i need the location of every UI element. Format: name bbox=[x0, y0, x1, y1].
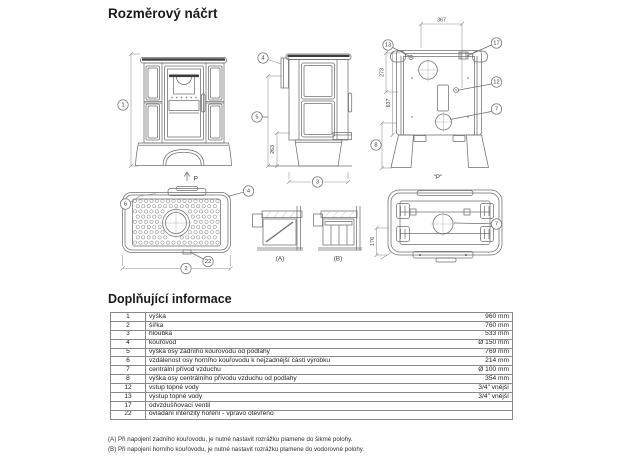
marker-6-grate: 6 bbox=[120, 194, 156, 210]
row-value: 960 mm bbox=[443, 313, 513, 322]
burn-control-lever bbox=[183, 250, 191, 254]
central-air-hole bbox=[434, 112, 454, 132]
row-number: 13 bbox=[111, 393, 146, 402]
table-row: 3hloubka533 mm bbox=[111, 330, 513, 339]
marker-22-label: 22 bbox=[205, 259, 211, 265]
marker-8-air-height: 8 bbox=[371, 140, 381, 150]
marker-12-water-inlet: 12 bbox=[459, 77, 502, 90]
dim-367 bbox=[419, 22, 464, 88]
marker-5-flue-height: 5 bbox=[252, 112, 268, 122]
table-row: 13výstup topné vody3/4" vnější bbox=[111, 393, 513, 402]
bottom-outline bbox=[388, 190, 502, 255]
baffle-horizontal bbox=[325, 222, 352, 226]
direction-p-label: P bbox=[194, 176, 199, 183]
document-page: Rozměrový náčrt 1 bbox=[0, 0, 624, 460]
row-value: 354 mm bbox=[443, 375, 513, 384]
row-number: 2 bbox=[111, 321, 146, 330]
marker-2-width: 2 bbox=[181, 263, 191, 273]
direction-p: P bbox=[184, 172, 198, 183]
table-row: 6vzdálenost osy horního kouřovodu k nejz… bbox=[111, 357, 513, 366]
dim-central-air-height bbox=[380, 121, 397, 170]
marker-12-label: 12 bbox=[493, 79, 499, 85]
dim-overall-height bbox=[129, 52, 140, 168]
marker-3-depth: 3 bbox=[312, 177, 322, 187]
flue-damper-arc bbox=[177, 77, 192, 85]
footnotes: (A) Při napojení zadního kouřovodu, je n… bbox=[108, 435, 364, 454]
top-flue-opening bbox=[160, 207, 192, 239]
dim-637-label: 637 bbox=[386, 99, 392, 108]
marker-7-label: 7 bbox=[495, 106, 498, 112]
rear-view: 367 bbox=[371, 18, 502, 182]
detail-b-label: (B) bbox=[334, 256, 342, 263]
top-view: 6 4 22 2 bbox=[120, 186, 253, 274]
marker-13-water-outlet: 13 bbox=[383, 40, 409, 56]
table-row: 8výška osy centrálního přívodu vzduchu o… bbox=[111, 375, 513, 384]
dim-263-label: 263 bbox=[270, 145, 276, 154]
dim-367-label: 367 bbox=[437, 18, 446, 24]
row-description: odvzdušňovací ventil bbox=[146, 401, 443, 410]
row-value: Ø 150 mm bbox=[443, 339, 513, 348]
marker-8-label: 8 bbox=[374, 142, 377, 148]
row-number: 3 bbox=[111, 330, 146, 339]
dimensional-drawing: 1 bbox=[0, 0, 624, 292]
side-view: 4 5 bbox=[252, 53, 352, 187]
bottom-central-air bbox=[431, 212, 455, 236]
detail-a-label: (A) bbox=[276, 256, 284, 263]
vent-valve bbox=[459, 52, 468, 59]
row-description: výška bbox=[146, 313, 443, 322]
marker-4-flue: 4 bbox=[258, 53, 268, 63]
row-number: 1 bbox=[111, 313, 146, 322]
front-view: 1 bbox=[118, 52, 232, 183]
row-description: centrální přívod vzduchu bbox=[146, 366, 443, 375]
front-door bbox=[165, 66, 205, 140]
detail-view-a: (A) bbox=[253, 206, 304, 263]
baffle-slanted bbox=[266, 222, 293, 242]
side-tiles bbox=[302, 63, 335, 137]
row-value bbox=[443, 401, 513, 410]
row-number: 4 bbox=[111, 339, 146, 348]
row-description: vstup topné vody bbox=[146, 384, 443, 393]
marker-5-label: 5 bbox=[255, 114, 258, 120]
footnote-b: (B) Při napojení horního kouřovodu, je n… bbox=[108, 445, 364, 455]
row-description: výstup topné vody bbox=[146, 393, 443, 402]
marker-2-label: 2 bbox=[184, 266, 187, 272]
top-flue-hole bbox=[417, 59, 440, 82]
row-value: 3/4" vnější bbox=[443, 384, 513, 393]
marker-1-height: 1 bbox=[118, 100, 128, 110]
marker-17-label: 17 bbox=[493, 40, 499, 46]
rear-legs bbox=[391, 135, 489, 168]
marker-7-bottom-air: 7 bbox=[454, 219, 502, 229]
marker-1-label: 1 bbox=[121, 102, 124, 108]
rear-slot bbox=[438, 85, 449, 111]
front-top-plate-edge bbox=[142, 58, 225, 60]
detail-view-b: (B) bbox=[314, 206, 363, 263]
marker-6-label: 6 bbox=[124, 201, 127, 207]
side-base bbox=[295, 140, 342, 166]
side-body bbox=[289, 60, 348, 141]
dim-273-label: 273 bbox=[380, 68, 386, 77]
row-description: ovládání intenzity hoření - vpravo otevř… bbox=[146, 410, 443, 419]
rear-flue-collar bbox=[281, 58, 289, 88]
table-row: 5výška osy zadního kouřovodu od podlahy7… bbox=[111, 348, 513, 357]
marker-3-label: 3 bbox=[316, 179, 319, 185]
marker-4-top-flue: 4 bbox=[228, 186, 254, 197]
marker-13-label: 13 bbox=[385, 42, 391, 48]
row-value: 533 mm bbox=[443, 330, 513, 339]
info-table: 1výška960 mm 2šířka760 mm 3hloubka533 mm… bbox=[110, 312, 513, 420]
row-number: 12 bbox=[111, 384, 146, 393]
table-row: 1výška960 mm bbox=[111, 313, 513, 322]
marker-17-vent-valve: 17 bbox=[467, 38, 502, 56]
table-row: 22ovládání intenzity hoření - vpravo ote… bbox=[111, 410, 513, 419]
row-value bbox=[443, 410, 513, 419]
footnote-a: (A) Při napojení zadního kouřovodu, je n… bbox=[108, 435, 364, 445]
row-value: 769 mm bbox=[443, 348, 513, 357]
perforation-grid bbox=[133, 199, 219, 244]
row-value: 760 mm bbox=[443, 321, 513, 330]
row-description: výška osy centrálního přívodu vzduchu od… bbox=[146, 375, 443, 384]
table-row: 2šířka760 mm bbox=[111, 321, 513, 330]
row-description: šířka bbox=[146, 321, 443, 330]
front-right-tiles bbox=[206, 66, 224, 140]
table-row: 12vstup topné vody3/4" vnější bbox=[111, 384, 513, 393]
row-number: 8 bbox=[111, 375, 146, 384]
marker-7-central-air: 7 bbox=[450, 104, 502, 120]
table-row: 4kouřovodØ 150 mm bbox=[111, 339, 513, 348]
row-description: vzdálenost osy horního kouřovodu k nejza… bbox=[146, 357, 443, 366]
row-value: 3/4" vnější bbox=[443, 393, 513, 402]
marker-7-bottom-label: 7 bbox=[495, 221, 498, 227]
row-description: výška osy zadního kouřovodu od podlahy bbox=[146, 348, 443, 357]
table-row: 17odvzdušňovací ventil bbox=[111, 401, 513, 410]
dim-637 bbox=[386, 51, 400, 137]
rear-body bbox=[397, 51, 482, 136]
marker-22-burn-control: 22 bbox=[191, 253, 213, 267]
front-left-tiles bbox=[144, 66, 162, 140]
dim-273 bbox=[384, 51, 398, 94]
ash-lip bbox=[333, 133, 352, 140]
section-title: Doplňující informace bbox=[108, 292, 232, 306]
dim-263 bbox=[275, 131, 290, 168]
table-row: 7centrální přívod vzduchuØ 100 mm bbox=[111, 366, 513, 375]
front-base bbox=[136, 143, 232, 166]
row-number: 22 bbox=[111, 410, 146, 419]
row-number: 7 bbox=[111, 366, 146, 375]
rear-view-label: "P" bbox=[434, 174, 443, 181]
row-number: 17 bbox=[111, 401, 146, 410]
dim-176-label: 176 bbox=[370, 237, 376, 246]
bottom-view: 7 176 bbox=[370, 190, 502, 262]
row-number: 6 bbox=[111, 357, 146, 366]
row-number: 5 bbox=[111, 348, 146, 357]
row-value: Ø 100 mm bbox=[443, 366, 513, 375]
row-description: kouřovod bbox=[146, 339, 443, 348]
dim-width bbox=[121, 255, 233, 271]
side-door-handle bbox=[349, 93, 352, 112]
row-description: hloubka bbox=[146, 330, 443, 339]
perforated-panel bbox=[133, 199, 221, 246]
row-value: 214 mm bbox=[443, 357, 513, 366]
dim-176 bbox=[375, 226, 390, 257]
